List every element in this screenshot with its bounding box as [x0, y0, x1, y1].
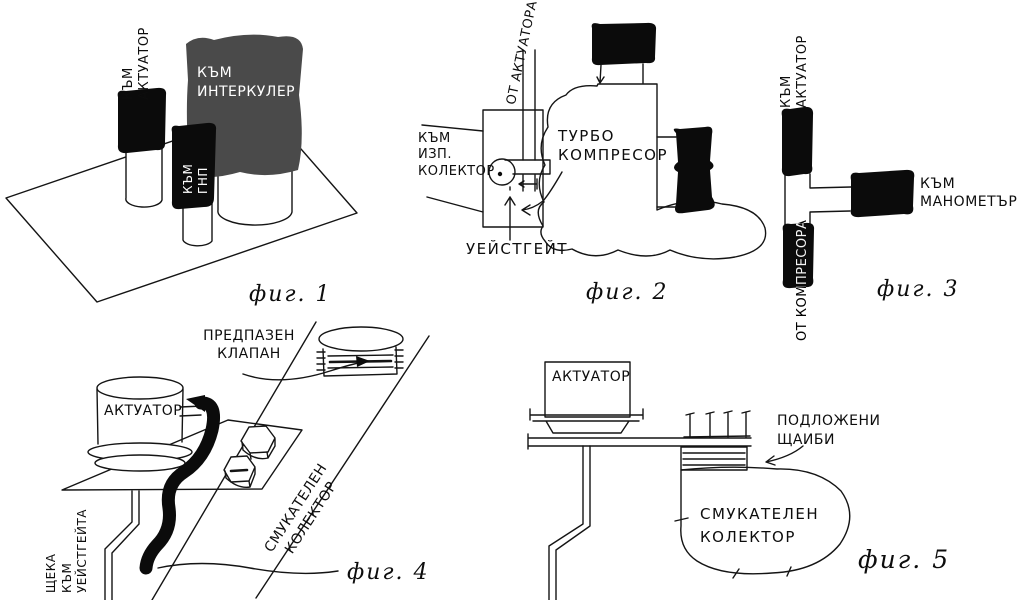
fig5-label-shim-washers: ПОДЛОЖЕНИ ЩАИБИ: [777, 412, 880, 450]
fig4-sketch: [62, 322, 429, 600]
fig4-manifold-bottom-curve: [158, 564, 338, 574]
fig3-label-to-manometer: КЪМ МАНОМЕТЪР: [920, 176, 1017, 211]
fig5-caption: фиг. 5: [858, 545, 950, 574]
fig5-bolt-block: [684, 411, 750, 437]
fig3-caption: фиг. 3: [877, 277, 960, 302]
fig2-compressor-cloud: [538, 84, 765, 259]
fig1-caption: фиг. 1: [249, 282, 332, 307]
fig2-outlet-hose: [674, 127, 715, 214]
fig3-label-from-compressor: ОТ КОМПРЕСОРА: [795, 220, 811, 341]
fig5-label-actuator: АКТУАТОР: [552, 369, 630, 387]
fig4-valve-arrowhead: [356, 356, 370, 367]
fig5-support: [549, 446, 590, 600]
fig4-valve-arrow: [243, 362, 363, 380]
fig4-bracket: [105, 491, 139, 600]
fig3-hose-to-actuator: [782, 107, 813, 176]
fig4-label-rod-to-wastegate: ЩЕКА КЪМ УЕЙСТГЕЙТА: [44, 509, 91, 593]
fig2-valve-pivot: [498, 172, 502, 176]
fig2-inlet-hose: [592, 23, 656, 65]
fig5-label-intake-manifold: СМУКАТЕЛЕН КОЛЕКТОР: [700, 503, 819, 548]
fig4-label-actuator: АКТУАТОР: [104, 403, 182, 421]
fig1-label-to-intercooler: КЪМ ИНТЕРКУЛЕР: [197, 64, 295, 102]
fig3-label-to-actuator: КЪМ АКТУАТОР: [779, 35, 812, 108]
fig4-caption: фиг. 4: [347, 560, 430, 585]
fig1-label-to-gnp: КЪМ ГНП: [181, 164, 211, 194]
fig3-hose-to-manometer: [851, 170, 915, 217]
fig4-label-safety-valve: ПРЕДПАЗЕН КЛАПАН: [198, 328, 300, 363]
fig5-sketch: [528, 362, 850, 600]
fig2-label-to-exhaust-manifold: КЪМ ИЗП. КОЛЕКТОР: [418, 131, 495, 180]
fig2-label-turbo-compressor: ТУРБО КОМПРЕСОР: [558, 127, 668, 165]
fig2-caption: фиг. 2: [586, 280, 669, 305]
fig4-actuator: [88, 377, 192, 471]
fig4-safety-valve: [317, 327, 403, 376]
fig5-actuator-bracket: [530, 409, 643, 433]
fig2-wastegate-arrow: [505, 187, 515, 240]
f2-inlet-duct-lines: [597, 64, 643, 83]
fig2-label-wastegate: УЕЙСТГЕЙТ: [466, 240, 568, 259]
sketch-canvas: КЪМ АКТУАТОР КЪМ ИНТЕРКУЛЕР КЪМ ГНП фиг.…: [0, 0, 1024, 600]
fig1-label-to-actuator: КЪМ АКТУАТОР: [121, 27, 154, 100]
fig1-actuator-cylinder: [126, 146, 162, 207]
